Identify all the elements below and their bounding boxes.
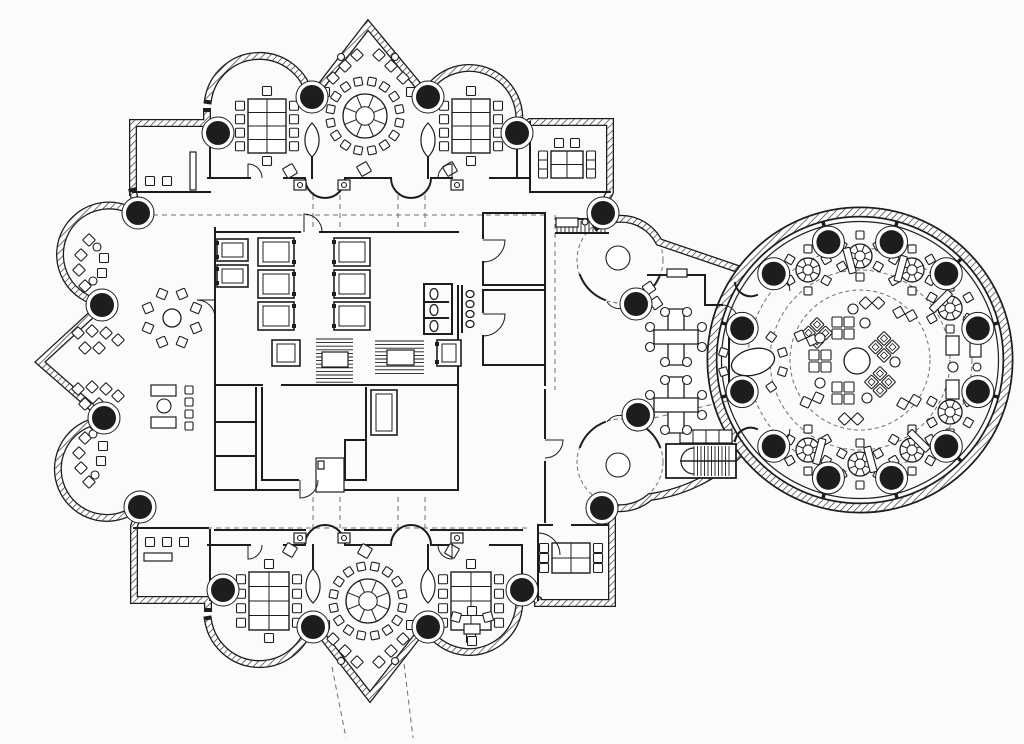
floor-plan-canvas xyxy=(0,0,1024,744)
floor-plan-page xyxy=(0,0,1024,744)
